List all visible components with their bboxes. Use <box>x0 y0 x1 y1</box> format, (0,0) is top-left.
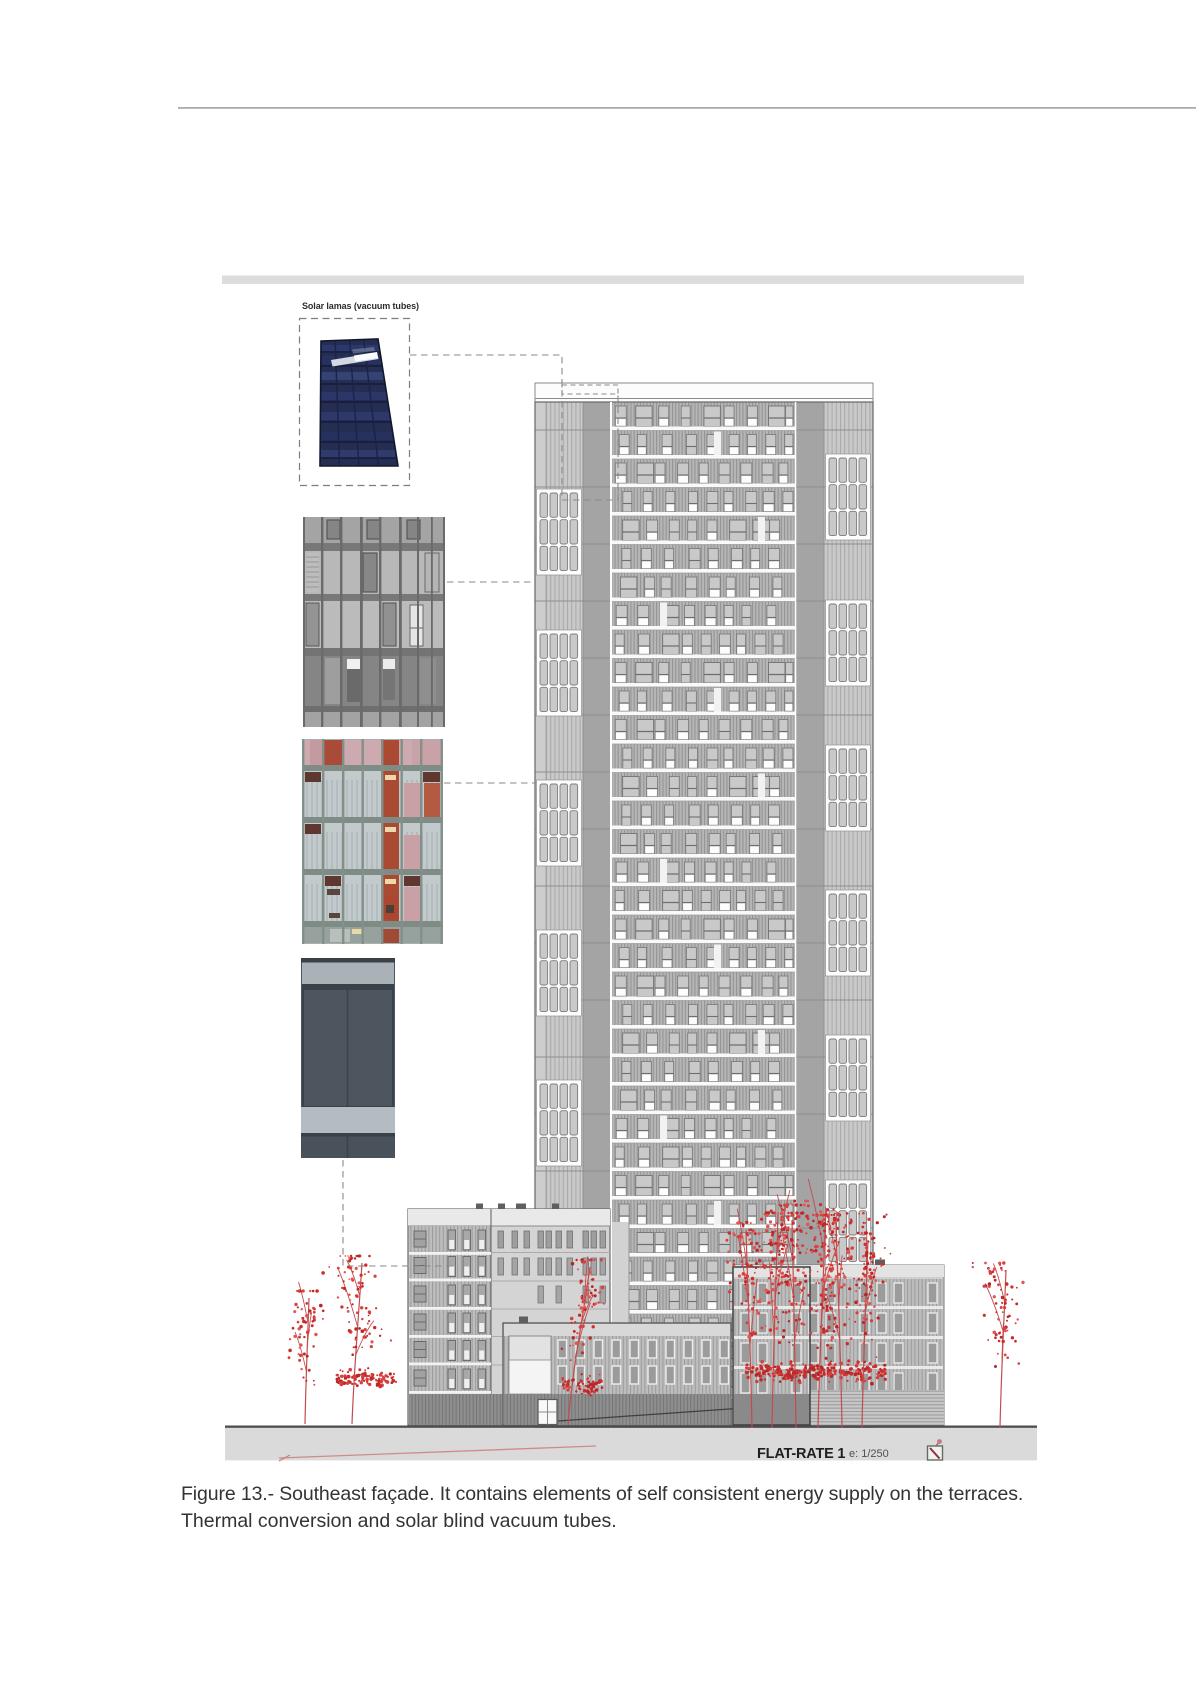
svg-text:e: 1/250: e: 1/250 <box>849 1448 889 1460</box>
svg-text:FLAT-RATE 1: FLAT-RATE 1 <box>757 1446 845 1462</box>
svg-text:Thermal conversion and solar b: Thermal conversion and solar blind vacuu… <box>181 1510 617 1532</box>
svg-text:Figure 13.- Southeast façade.: Figure 13.- Southeast façade. It contain… <box>181 1483 1023 1505</box>
svg-text:Solar lamas (vacuum tubes): Solar lamas (vacuum tubes) <box>302 301 419 311</box>
